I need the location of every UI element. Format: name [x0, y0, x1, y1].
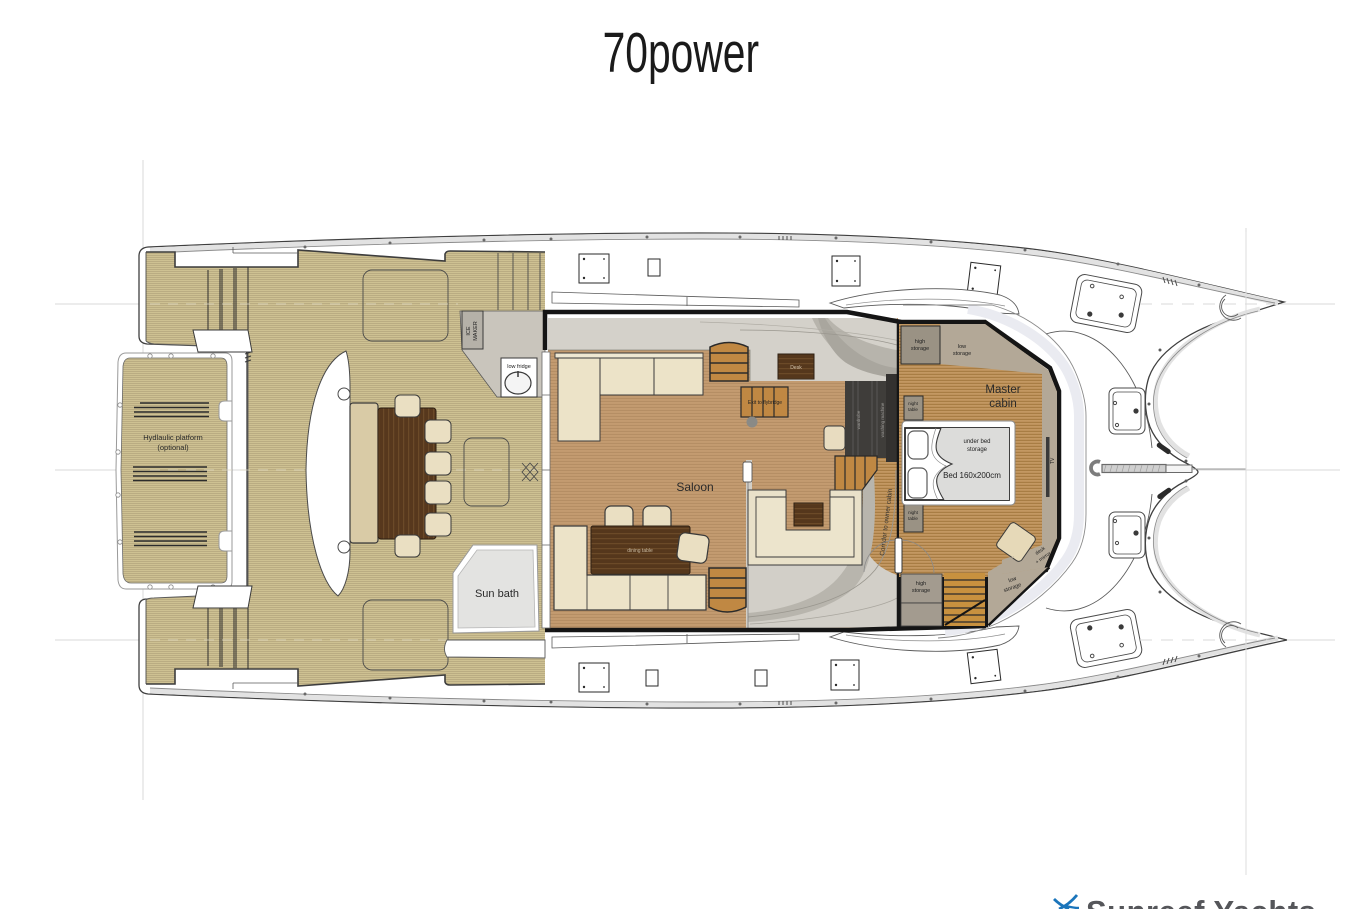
svg-text:night: night [908, 401, 919, 406]
svg-text:MAKER: MAKER [473, 321, 479, 341]
svg-text:Exit to flybridge: Exit to flybridge [748, 400, 782, 406]
svg-text:Desk: Desk [790, 365, 802, 371]
svg-text:Sunreef Yachts: Sunreef Yachts [1086, 894, 1316, 909]
svg-text:Bed 160x200cm: Bed 160x200cm [943, 471, 1001, 480]
svg-text:ICE: ICE [466, 326, 472, 336]
svg-text:night: night [908, 510, 919, 515]
svg-text:low fridge: low fridge [507, 364, 531, 370]
svg-text:under bed: under bed [963, 439, 990, 445]
svg-text:table: table [908, 407, 918, 412]
svg-text:(optional): (optional) [157, 443, 189, 452]
svg-text:cabin: cabin [989, 398, 1017, 410]
svg-text:washing machine: washing machine [880, 402, 885, 437]
svg-text:wardrobe: wardrobe [856, 410, 861, 429]
svg-text:low: low [958, 344, 966, 350]
svg-text:storage: storage [911, 346, 929, 352]
svg-text:Saloon: Saloon [676, 480, 713, 494]
svg-text:dining table: dining table [627, 548, 653, 554]
svg-text:Master: Master [985, 384, 1020, 396]
svg-text:storage: storage [912, 588, 930, 594]
svg-text:70power: 70power [603, 21, 759, 84]
svg-text:high: high [916, 581, 926, 587]
svg-text:storage: storage [967, 447, 988, 453]
svg-text:storage: storage [953, 351, 971, 357]
svg-text:TV: TV [1050, 457, 1056, 464]
svg-text:Hydlaulic platform: Hydlaulic platform [143, 433, 203, 442]
svg-text:high: high [915, 339, 925, 345]
svg-text:table: table [908, 516, 918, 521]
svg-text:Sun bath: Sun bath [475, 588, 519, 600]
